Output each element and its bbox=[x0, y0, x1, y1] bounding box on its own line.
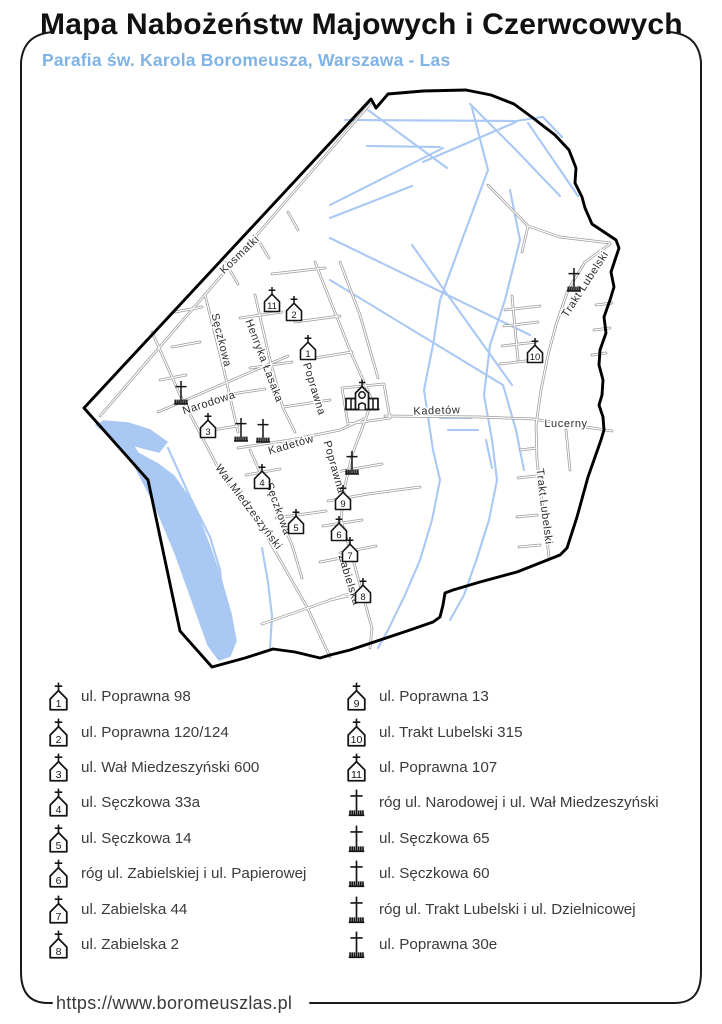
svg-text:8: 8 bbox=[360, 592, 365, 603]
svg-text:7: 7 bbox=[347, 551, 352, 562]
svg-text:4: 4 bbox=[55, 804, 61, 816]
svg-text:1: 1 bbox=[305, 349, 310, 360]
legend-item-label: róg ul. Trakt Lubelski i ul. Dzielnicowe… bbox=[379, 901, 636, 918]
legend-item-label: ul. Poprawna 120/124 bbox=[81, 724, 229, 741]
legend-item-label: róg ul. Zabielskiej i ul. Papierowej bbox=[81, 865, 306, 882]
legend-item-label: ul. Zabielska 2 bbox=[81, 936, 179, 953]
svg-text:6: 6 bbox=[336, 530, 341, 541]
legend-item-label: ul. Sęczkowa 60 bbox=[379, 865, 490, 882]
legend-item: 4ul. Sęczkowa 33a bbox=[46, 785, 306, 820]
chapel-icon: 9 bbox=[346, 681, 367, 712]
chapel-icon: 5 bbox=[48, 823, 69, 854]
cross-icon bbox=[347, 895, 366, 924]
svg-text:3: 3 bbox=[55, 769, 61, 781]
legend-item: 1ul. Poprawna 98 bbox=[46, 679, 306, 714]
cross-icon bbox=[347, 824, 366, 853]
svg-text:3: 3 bbox=[205, 427, 210, 438]
cross-icon bbox=[347, 859, 366, 888]
poster-page: { "header": { "title": "Mapa Nabożeństw … bbox=[0, 0, 722, 1024]
legend-item: róg ul. Trakt Lubelski i ul. Dzielnicowe… bbox=[344, 891, 659, 926]
legend-item-label: ul. Poprawna 107 bbox=[379, 759, 497, 776]
street-label: Kadetów bbox=[413, 404, 460, 418]
street-label: Lucerny bbox=[544, 418, 587, 430]
chapel-icon: 1 bbox=[48, 681, 69, 712]
legend-item: 8ul. Zabielska 2 bbox=[46, 927, 306, 962]
chapel-icon: 4 bbox=[48, 787, 69, 818]
cross-icon bbox=[347, 930, 366, 959]
chapel-icon: 7 bbox=[48, 894, 69, 925]
chapel-icon: 6 bbox=[48, 858, 69, 889]
legend-item-label: ul. Zabielska 44 bbox=[81, 901, 187, 918]
svg-text:5: 5 bbox=[55, 840, 61, 852]
svg-text:10: 10 bbox=[530, 352, 541, 363]
legend-column-left: 1ul. Poprawna 98 2ul. Poprawna 120/124 3… bbox=[46, 679, 306, 962]
website-url: https://www.boromeuszlas.pl bbox=[56, 993, 292, 1014]
cross-icon bbox=[347, 788, 366, 817]
legend-item-label: ul. Sęczkowa 14 bbox=[81, 830, 192, 847]
svg-text:8: 8 bbox=[55, 946, 61, 958]
legend-item-label: ul. Poprawna 98 bbox=[81, 688, 191, 705]
svg-text:6: 6 bbox=[55, 875, 61, 887]
legend-item: ul. Sęczkowa 60 bbox=[344, 856, 659, 891]
svg-text:4: 4 bbox=[259, 478, 264, 489]
legend-item-label: ul. Wał Miedzeszyński 600 bbox=[81, 759, 259, 776]
svg-text:7: 7 bbox=[55, 911, 61, 923]
legend-item: 7ul. Zabielska 44 bbox=[46, 891, 306, 926]
legend-item-label: ul. Sęczkowa 65 bbox=[379, 830, 490, 847]
legend-item: 6róg ul. Zabielskiej i ul. Papierowej bbox=[46, 856, 306, 891]
legend-item: 2ul. Poprawna 120/124 bbox=[46, 714, 306, 749]
legend-item-label: ul. Poprawna 30e bbox=[379, 936, 497, 953]
legend-item: ul. Sęczkowa 65 bbox=[344, 821, 659, 856]
svg-text:5: 5 bbox=[293, 523, 298, 534]
svg-text:10: 10 bbox=[350, 734, 362, 746]
svg-text:2: 2 bbox=[291, 310, 296, 321]
legend-item: róg ul. Narodowej i ul. Wał Miedzeszyńsk… bbox=[344, 785, 659, 820]
chapel-icon: 2 bbox=[48, 717, 69, 748]
svg-text:11: 11 bbox=[351, 769, 362, 781]
legend-item: 10ul. Trakt Lubelski 315 bbox=[344, 714, 659, 749]
legend-item: 5ul. Sęczkowa 14 bbox=[46, 821, 306, 856]
chapel-icon: 10 bbox=[346, 717, 367, 748]
legend-item: 11ul. Poprawna 107 bbox=[344, 750, 659, 785]
legend-item-label: róg ul. Narodowej i ul. Wał Miedzeszyńsk… bbox=[379, 794, 659, 811]
svg-text:11: 11 bbox=[267, 301, 277, 312]
svg-text:9: 9 bbox=[353, 698, 359, 710]
chapel-icon: 8 bbox=[48, 929, 69, 960]
legend-item-label: ul. Sęczkowa 33a bbox=[81, 794, 200, 811]
legend-item-label: ul. Poprawna 13 bbox=[379, 688, 489, 705]
svg-text:1: 1 bbox=[55, 698, 61, 710]
legend-item: ul. Poprawna 30e bbox=[344, 927, 659, 962]
svg-text:2: 2 bbox=[55, 734, 61, 746]
legend-item-label: ul. Trakt Lubelski 315 bbox=[379, 724, 523, 741]
svg-text:9: 9 bbox=[340, 499, 345, 510]
legend-item: 3ul. Wał Miedzeszyński 600 bbox=[46, 750, 306, 785]
chapel-icon: 3 bbox=[48, 752, 69, 783]
chapel-icon: 11 bbox=[346, 752, 367, 783]
legend-column-right: 9ul. Poprawna 13 10ul. Trakt Lubelski 31… bbox=[344, 679, 659, 962]
legend-item: 9ul. Poprawna 13 bbox=[344, 679, 659, 714]
